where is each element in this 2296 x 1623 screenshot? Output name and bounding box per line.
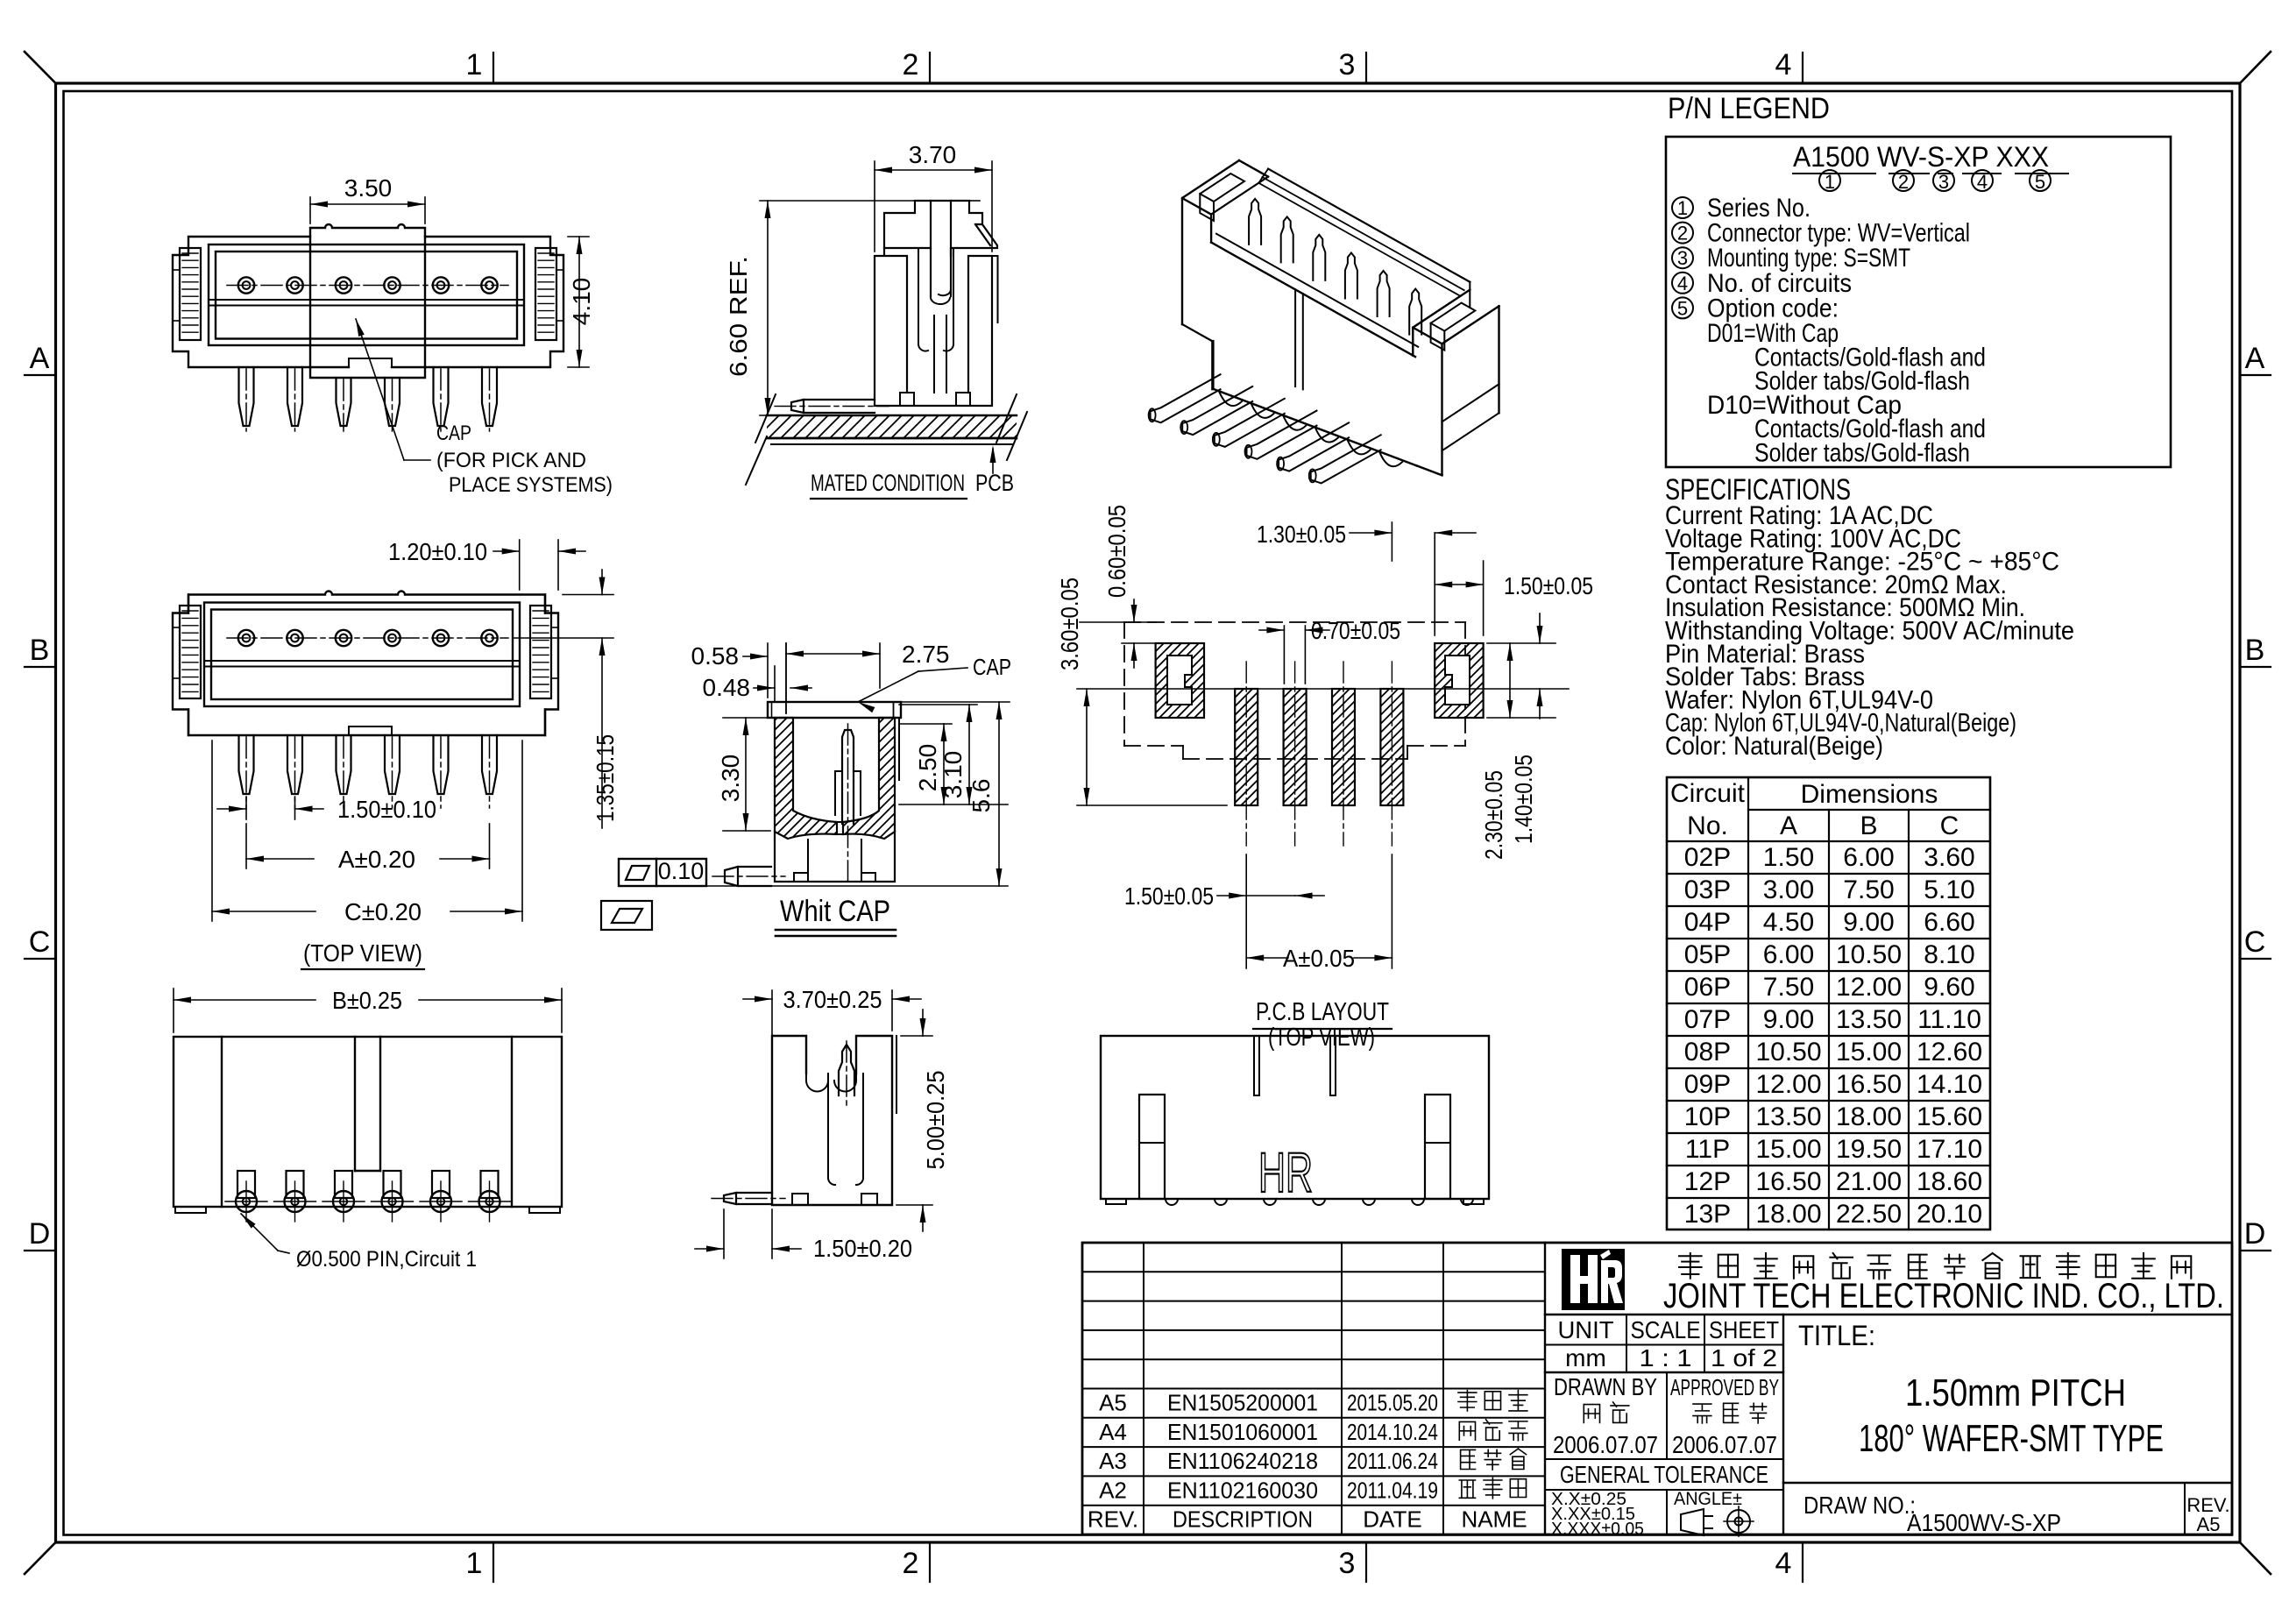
svg-text:JOINT TECH ELECTRONIC IND. CO.: JOINT TECH ELECTRONIC IND. CO., LTD. <box>1663 1277 2224 1315</box>
svg-text:7.50: 7.50 <box>1843 875 1894 904</box>
svg-text:8.10: 8.10 <box>1924 940 1974 969</box>
svg-text:17.10: 17.10 <box>1917 1135 1982 1164</box>
svg-text:12.00: 12.00 <box>1755 1070 1821 1099</box>
svg-text:0.70±0.05: 0.70±0.05 <box>1311 617 1400 644</box>
svg-text:3.70: 3.70 <box>909 141 957 168</box>
svg-text:C: C <box>1940 811 1959 840</box>
svg-text:2014.10.24: 2014.10.24 <box>1347 1419 1438 1445</box>
svg-text:7.50: 7.50 <box>1763 973 1814 1002</box>
svg-text:1 of 2: 1 of 2 <box>1711 1344 1777 1371</box>
svg-text:MATED CONDITION: MATED CONDITION <box>811 470 965 496</box>
svg-text:19.50: 19.50 <box>1836 1135 1902 1164</box>
svg-text:1.30±0.05: 1.30±0.05 <box>1257 521 1346 548</box>
svg-text:2: 2 <box>1677 223 1688 245</box>
svg-text:1: 1 <box>1677 197 1688 219</box>
svg-text:B: B <box>1860 811 1877 840</box>
svg-text:6.00: 6.00 <box>1763 940 1814 969</box>
svg-text:TITLE:: TITLE: <box>1798 1320 1875 1351</box>
svg-text:07P: 07P <box>1684 1005 1731 1034</box>
svg-text:1: 1 <box>466 1547 483 1580</box>
svg-text:DATE: DATE <box>1363 1506 1421 1533</box>
svg-text:2.75: 2.75 <box>902 641 950 668</box>
svg-text:PLACE SYSTEMS): PLACE SYSTEMS) <box>449 473 613 497</box>
svg-text:2: 2 <box>903 48 919 82</box>
svg-text:3: 3 <box>1677 247 1688 269</box>
svg-text:A: A <box>2245 342 2265 375</box>
svg-text:REV.: REV. <box>1088 1506 1138 1533</box>
svg-text:05P: 05P <box>1684 940 1731 969</box>
svg-text:A2: A2 <box>1099 1477 1127 1503</box>
svg-text:16.50: 16.50 <box>1755 1167 1821 1196</box>
svg-text:B±0.25: B±0.25 <box>332 987 402 1014</box>
svg-text:6.60: 6.60 <box>1924 908 1974 937</box>
svg-text:A5: A5 <box>2197 1513 2221 1535</box>
svg-text:4.10: 4.10 <box>568 278 595 326</box>
svg-text:0.10: 0.10 <box>658 858 705 884</box>
svg-text:12P: 12P <box>1684 1167 1731 1196</box>
svg-text:9.60: 9.60 <box>1924 973 1974 1002</box>
svg-text:Color: Natural(Beige): Color: Natural(Beige) <box>1665 732 1883 761</box>
svg-text:3.50: 3.50 <box>344 174 393 202</box>
svg-text:A: A <box>30 342 50 375</box>
svg-text:1.20±0.10: 1.20±0.10 <box>388 538 487 565</box>
svg-text:1.50±0.20: 1.50±0.20 <box>813 1235 912 1262</box>
svg-text:15.60: 15.60 <box>1917 1102 1982 1131</box>
svg-text:10.50: 10.50 <box>1836 940 1902 969</box>
svg-text:1.50±0.10: 1.50±0.10 <box>337 796 436 823</box>
svg-text:mm: mm <box>1565 1344 1606 1371</box>
svg-text:0.48: 0.48 <box>703 674 751 701</box>
svg-text:Circuit: Circuit <box>1670 779 1746 808</box>
svg-text:D: D <box>2244 1217 2266 1251</box>
svg-text:14.10: 14.10 <box>1917 1070 1982 1099</box>
svg-text:0.60±0.05: 0.60±0.05 <box>1103 505 1130 598</box>
svg-text:1.40±0.05: 1.40±0.05 <box>1510 755 1537 844</box>
svg-text:DRAW NO.:: DRAW NO.: <box>1803 1492 1916 1519</box>
svg-text:4: 4 <box>1775 1547 1792 1580</box>
svg-text:18.60: 18.60 <box>1917 1167 1982 1196</box>
svg-text:11.10: 11.10 <box>1917 1005 1981 1034</box>
svg-text:02P: 02P <box>1684 843 1731 872</box>
svg-text:2015.05.20: 2015.05.20 <box>1347 1390 1438 1416</box>
svg-text:3.10: 3.10 <box>939 751 967 799</box>
svg-text:(TOP VIEW): (TOP VIEW) <box>1268 1024 1375 1052</box>
svg-text:3: 3 <box>1339 48 1356 82</box>
svg-text:13.50: 13.50 <box>1755 1102 1821 1131</box>
svg-text:NAME: NAME <box>1461 1506 1527 1533</box>
svg-text:4: 4 <box>1677 273 1688 294</box>
svg-text:3.60±0.05: 3.60±0.05 <box>1056 578 1083 670</box>
svg-text:GENERAL TOLERANCE: GENERAL TOLERANCE <box>1560 1461 1768 1488</box>
svg-text:6.60 REF.: 6.60 REF. <box>725 256 752 377</box>
svg-text:1.50mm PITCH: 1.50mm PITCH <box>1905 1371 2126 1414</box>
svg-text:A1500 WV-S-XP XXX: A1500 WV-S-XP XXX <box>1793 141 2049 173</box>
svg-text:12.00: 12.00 <box>1836 973 1902 1002</box>
svg-text:2011.04.19: 2011.04.19 <box>1347 1477 1438 1503</box>
svg-text:5: 5 <box>1677 297 1688 319</box>
svg-text:APPROVED BY: APPROVED BY <box>1670 1374 1779 1400</box>
svg-text:SCALE: SCALE <box>1631 1316 1701 1343</box>
svg-text:EN1505200001: EN1505200001 <box>1167 1390 1318 1416</box>
svg-text:16.50: 16.50 <box>1836 1070 1902 1099</box>
svg-text:No.: No. <box>1687 811 1728 840</box>
svg-text:9.00: 9.00 <box>1763 1005 1814 1034</box>
svg-text:9.00: 9.00 <box>1843 908 1894 937</box>
svg-text:A4: A4 <box>1099 1419 1127 1445</box>
svg-text:13P: 13P <box>1684 1200 1731 1229</box>
svg-text:4: 4 <box>1775 48 1792 82</box>
svg-text:B: B <box>30 634 50 667</box>
svg-text:0.58: 0.58 <box>691 642 740 670</box>
svg-text:2011.06.24: 2011.06.24 <box>1347 1448 1438 1474</box>
svg-text:5.10: 5.10 <box>1924 875 1974 904</box>
svg-text:UNIT: UNIT <box>1558 1316 1614 1343</box>
svg-text:A1500WV-S-XP: A1500WV-S-XP <box>1907 1509 2061 1536</box>
svg-text:1: 1 <box>466 48 483 82</box>
svg-text:P.C.B LAYOUT: P.C.B LAYOUT <box>1256 998 1389 1026</box>
svg-text:Ø0.500 PIN,Circuit 1: Ø0.500 PIN,Circuit 1 <box>296 1247 477 1272</box>
svg-text:EN1106240218: EN1106240218 <box>1167 1448 1318 1474</box>
svg-text:C: C <box>2244 925 2266 959</box>
svg-text:D: D <box>29 1217 51 1251</box>
svg-text:(FOR PICK AND: (FOR PICK AND <box>436 449 586 472</box>
svg-text:11P: 11P <box>1685 1135 1730 1164</box>
svg-text:2: 2 <box>903 1547 919 1580</box>
svg-text:3: 3 <box>1938 171 1949 193</box>
svg-text:A3: A3 <box>1099 1448 1127 1474</box>
svg-text:18.00: 18.00 <box>1836 1102 1902 1131</box>
svg-text:CAP: CAP <box>436 422 471 445</box>
svg-text:1 : 1: 1 : 1 <box>1640 1344 1692 1371</box>
svg-text:CAP: CAP <box>973 654 1011 680</box>
svg-text:Dimensions: Dimensions <box>1801 780 1938 809</box>
svg-text:2006.07.07: 2006.07.07 <box>1672 1431 1777 1458</box>
svg-text:15.00: 15.00 <box>1836 1038 1902 1067</box>
svg-text:3.70±0.25: 3.70±0.25 <box>783 986 882 1013</box>
svg-text:HR: HR <box>1258 1141 1313 1204</box>
svg-text:C: C <box>29 925 51 959</box>
svg-text:18.00: 18.00 <box>1755 1200 1821 1229</box>
svg-text:2: 2 <box>1898 171 1909 193</box>
svg-text:3.30: 3.30 <box>717 755 744 803</box>
svg-text:P/N LEGEND: P/N LEGEND <box>1668 92 1830 125</box>
svg-text:2.30±0.05: 2.30±0.05 <box>1480 770 1507 860</box>
svg-text:DRAWN BY: DRAWN BY <box>1554 1373 1657 1400</box>
svg-text:2.50: 2.50 <box>914 744 941 792</box>
svg-text:A: A <box>1780 811 1797 840</box>
svg-text:3.00: 3.00 <box>1763 875 1814 904</box>
svg-text:10.50: 10.50 <box>1755 1038 1821 1067</box>
svg-text:C±0.20: C±0.20 <box>344 898 422 925</box>
svg-text:Solder tabs/Gold-flash: Solder tabs/Gold-flash <box>1754 439 1970 468</box>
svg-text:1.50±0.05: 1.50±0.05 <box>1124 882 1214 910</box>
svg-text:4.50: 4.50 <box>1763 908 1814 937</box>
svg-text:A±0.05: A±0.05 <box>1283 945 1355 972</box>
svg-text:21.00: 21.00 <box>1836 1167 1902 1196</box>
svg-text:4: 4 <box>1977 171 1988 193</box>
svg-text:1.50±0.05: 1.50±0.05 <box>1504 572 1593 599</box>
svg-text:1: 1 <box>1825 171 1835 193</box>
svg-text:EN1102160030: EN1102160030 <box>1167 1477 1318 1503</box>
svg-text:A5: A5 <box>1099 1390 1127 1416</box>
svg-text:08P: 08P <box>1684 1038 1731 1067</box>
svg-text:A±0.20: A±0.20 <box>338 846 415 873</box>
svg-text:12.60: 12.60 <box>1917 1038 1982 1067</box>
svg-text:06P: 06P <box>1684 973 1731 1002</box>
svg-text:3.60: 3.60 <box>1924 843 1974 872</box>
svg-text:1.35±0.15: 1.35±0.15 <box>592 734 619 822</box>
svg-text:EN1501060001: EN1501060001 <box>1167 1419 1318 1445</box>
svg-text:10P: 10P <box>1684 1102 1731 1131</box>
svg-text:5.6: 5.6 <box>967 779 995 813</box>
svg-text:ANGLE±: ANGLE± <box>1674 1489 1742 1509</box>
svg-text:2006.07.07: 2006.07.07 <box>1553 1431 1658 1458</box>
svg-text:09P: 09P <box>1684 1070 1731 1099</box>
svg-text:(TOP VIEW): (TOP VIEW) <box>303 939 422 967</box>
svg-text:03P: 03P <box>1684 875 1731 904</box>
svg-text:13.50: 13.50 <box>1836 1005 1902 1034</box>
svg-text:X.XXX±0.05: X.XXX±0.05 <box>1551 1520 1644 1539</box>
svg-text:180° WAFER-SMT TYPE: 180° WAFER-SMT TYPE <box>1859 1417 2164 1460</box>
svg-text:22.50: 22.50 <box>1836 1200 1902 1229</box>
svg-text:5: 5 <box>2035 171 2045 193</box>
svg-text:B: B <box>2245 634 2265 667</box>
svg-text:3: 3 <box>1339 1547 1356 1580</box>
svg-text:PCB: PCB <box>975 470 1014 496</box>
svg-text:20.10: 20.10 <box>1917 1200 1982 1229</box>
svg-text:Whit CAP: Whit CAP <box>780 895 890 928</box>
svg-text:SHEET: SHEET <box>1709 1316 1779 1343</box>
svg-text:15.00: 15.00 <box>1755 1135 1821 1164</box>
svg-text:DESCRIPTION: DESCRIPTION <box>1173 1506 1313 1533</box>
svg-text:04P: 04P <box>1684 908 1731 937</box>
svg-text:1.50: 1.50 <box>1763 843 1814 872</box>
svg-text:6.00: 6.00 <box>1843 843 1894 872</box>
svg-text:5.00±0.25: 5.00±0.25 <box>922 1071 949 1170</box>
